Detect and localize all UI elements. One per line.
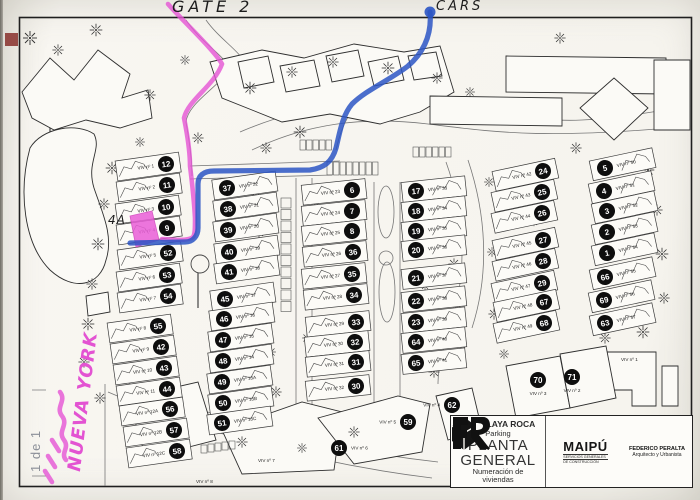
tree-icon [180, 55, 190, 65]
parking-stall [366, 162, 372, 175]
maipu-tagline-2: DE CONSTRUCCIÓN [563, 459, 607, 464]
building-outline [86, 292, 110, 316]
house-number: 10 [161, 202, 172, 212]
viv-label: VIV nº 3 [530, 391, 547, 396]
house-number: 30 [351, 381, 361, 391]
house-number: 48 [218, 356, 229, 366]
viv-label: VIV nº 5 [379, 420, 396, 425]
plan-description-line2: viviendas [451, 476, 545, 484]
parking-stall [281, 221, 291, 231]
scanned-site-plan: 12VIV nº 111VIV nº 210VIV nº 39VIV nº 45… [0, 0, 700, 500]
house-number: 54 [163, 291, 174, 301]
house-number: 35 [347, 269, 357, 279]
parking-stall [307, 140, 313, 150]
tree-icon [658, 292, 669, 303]
house-number: 64 [411, 337, 421, 347]
parking-stall [201, 445, 207, 453]
house-number: 21 [411, 273, 421, 283]
road-median [379, 251, 393, 265]
building-outline [506, 56, 666, 94]
house-number: 58 [172, 446, 183, 456]
house-number: 41 [224, 267, 235, 277]
parking-stall [313, 140, 319, 150]
building-outline [654, 60, 690, 130]
house-number: 39 [223, 225, 234, 235]
viv-label: VIV nº 1 [621, 357, 638, 362]
house-number: 34 [349, 290, 359, 300]
parking-stall [446, 147, 452, 157]
house-number: 31 [351, 357, 361, 367]
parking-stall [281, 233, 291, 243]
tree-icon [192, 132, 203, 143]
house-number: 50 [218, 398, 229, 408]
tree-icon [236, 436, 247, 447]
parking-stall [281, 302, 291, 312]
house-number: 71 [568, 373, 577, 382]
parking-stall [281, 279, 291, 289]
tree-icon [260, 142, 271, 153]
title-block: C. P. PLAYA ROCA Parking PLANTA GENERAL … [450, 415, 693, 488]
fp-monogram-icon [451, 416, 491, 450]
house-number: 52 [163, 248, 174, 258]
parking-stall [334, 162, 340, 175]
house-number: 18 [411, 206, 421, 216]
house-number: 20 [411, 245, 421, 255]
house-number: 57 [169, 425, 180, 435]
cars-handwritten-label: CARS [436, 0, 483, 14]
house-number: 37 [222, 183, 233, 193]
house-plot: 70VIV nº 3 [530, 372, 547, 396]
house-number: 23 [411, 317, 421, 327]
house-number: 17 [411, 186, 421, 196]
parking-stall [426, 147, 432, 157]
tree-icon [23, 31, 37, 45]
tree-icon [144, 89, 155, 100]
parking-stall [439, 147, 445, 157]
house-number: 70 [534, 376, 543, 385]
sheet-number-label: 1 de 1 [28, 430, 43, 472]
parking-stall [281, 210, 291, 220]
road-median [379, 262, 395, 322]
tree-icon [570, 142, 581, 153]
tree-icon [244, 82, 257, 95]
tree-icon [382, 62, 395, 75]
parking-stall [353, 162, 359, 175]
house-number: 47 [218, 335, 229, 345]
building-outline [280, 60, 320, 92]
tree-icon [297, 443, 307, 453]
house-number: 45 [220, 294, 231, 304]
tree-icon [90, 24, 103, 37]
tree-icon [294, 126, 307, 139]
house-number: 12 [161, 159, 172, 169]
tree-icon [286, 66, 297, 77]
house-number: 55 [153, 321, 164, 331]
tree-icon [499, 349, 509, 359]
parking-stall [433, 147, 439, 157]
tree-icon [554, 32, 565, 43]
house-number: 49 [217, 377, 228, 387]
architect-role: Arquitecto y Urbanista [632, 452, 681, 458]
parking-stall [300, 140, 306, 150]
parking-stall [208, 444, 214, 452]
maipu-logo-cell: MAIPÚ SERVICIOS GENERALES DE CONSTRUCCIÓ… [546, 416, 625, 487]
house-number: 43 [159, 363, 170, 373]
building-outline [238, 56, 274, 88]
pink-margin-dash [48, 456, 55, 467]
tree-icon [327, 56, 338, 67]
parking-stall [281, 290, 291, 300]
parking-stall [340, 162, 346, 175]
house-number: 61 [335, 444, 344, 453]
house-number: 40 [224, 247, 235, 257]
architect-logo-cell: FEDERICO PERALTA Arquitecto y Urbanista [625, 416, 689, 487]
parking-stall [347, 162, 353, 175]
parking-stall [373, 162, 379, 175]
house-number: 46 [219, 314, 230, 324]
parking-stall [222, 442, 228, 450]
tree-icon [82, 318, 95, 331]
house-plot: 71VIV nº 2 [564, 369, 581, 393]
parking-stall [215, 443, 221, 451]
parking-stall [281, 267, 291, 277]
building-outline [662, 366, 678, 406]
house-number: 19 [411, 226, 421, 236]
tree-icon [431, 72, 442, 83]
house-number: 65 [411, 358, 421, 368]
parking-stall [413, 147, 419, 157]
gate2-handwritten-label: GATE 2 [172, 0, 253, 16]
blue-route-start-dot [425, 7, 436, 18]
road-median [378, 186, 394, 238]
house-number: 56 [165, 404, 176, 414]
tree-icon [348, 426, 359, 437]
house-plot: 30VIV nº 32 [305, 375, 371, 402]
tree-icon [86, 278, 97, 289]
house-number: 36 [348, 247, 358, 257]
tree-icon [637, 326, 650, 339]
house-number: 53 [162, 270, 173, 280]
house-number: 32 [350, 337, 360, 347]
tree-icon [92, 238, 105, 251]
viv-label: VIV nº 2 [564, 388, 581, 393]
parking-stall [281, 244, 291, 254]
maipu-tagline-1: SERVICIOS GENERALES [563, 454, 607, 459]
parking-stall [281, 256, 291, 266]
building-outline [326, 50, 364, 82]
maipu-name: MAIPÚ [563, 439, 607, 454]
viv-label: VIV nº 7 [258, 458, 275, 463]
tree-icon [135, 137, 145, 147]
plan-title-line2: GENERAL [451, 453, 545, 468]
parking-stall [320, 140, 326, 150]
red-stamp-square [5, 33, 18, 46]
house-number: 42 [156, 342, 167, 352]
house-number: 33 [351, 317, 361, 327]
tree-icon [98, 198, 109, 209]
house-number: 51 [217, 418, 228, 428]
road-line [190, 161, 340, 166]
tree-icon [52, 44, 63, 55]
parking-stall [360, 162, 366, 175]
pink-margin-dash [45, 471, 52, 482]
house-number: 22 [411, 296, 421, 306]
road-line [468, 160, 484, 328]
house-number: 38 [223, 204, 234, 214]
parking-stall [326, 140, 332, 150]
parking-stall [420, 147, 426, 157]
viv-label: VIV nº 4 [423, 403, 440, 408]
house-plot: 21VIV nº 37 [401, 263, 467, 290]
house-number: 59 [404, 418, 413, 427]
tree-icon [465, 87, 475, 97]
pink-margin-dash [52, 440, 59, 451]
park-circle [191, 255, 209, 273]
parking-stall [281, 198, 291, 208]
viv-label: VIV nº 6 [351, 446, 368, 451]
building-outline [22, 50, 152, 130]
house-number: 44 [162, 384, 173, 394]
house-number: 62 [448, 401, 457, 410]
building-outline [24, 128, 109, 284]
tree-icon [94, 392, 105, 403]
building-outline [430, 96, 562, 126]
viv-label: VIV nº 8 [196, 479, 213, 484]
unit-4a-handwritten-label: 4A [108, 213, 126, 227]
tree-icon [484, 177, 494, 187]
